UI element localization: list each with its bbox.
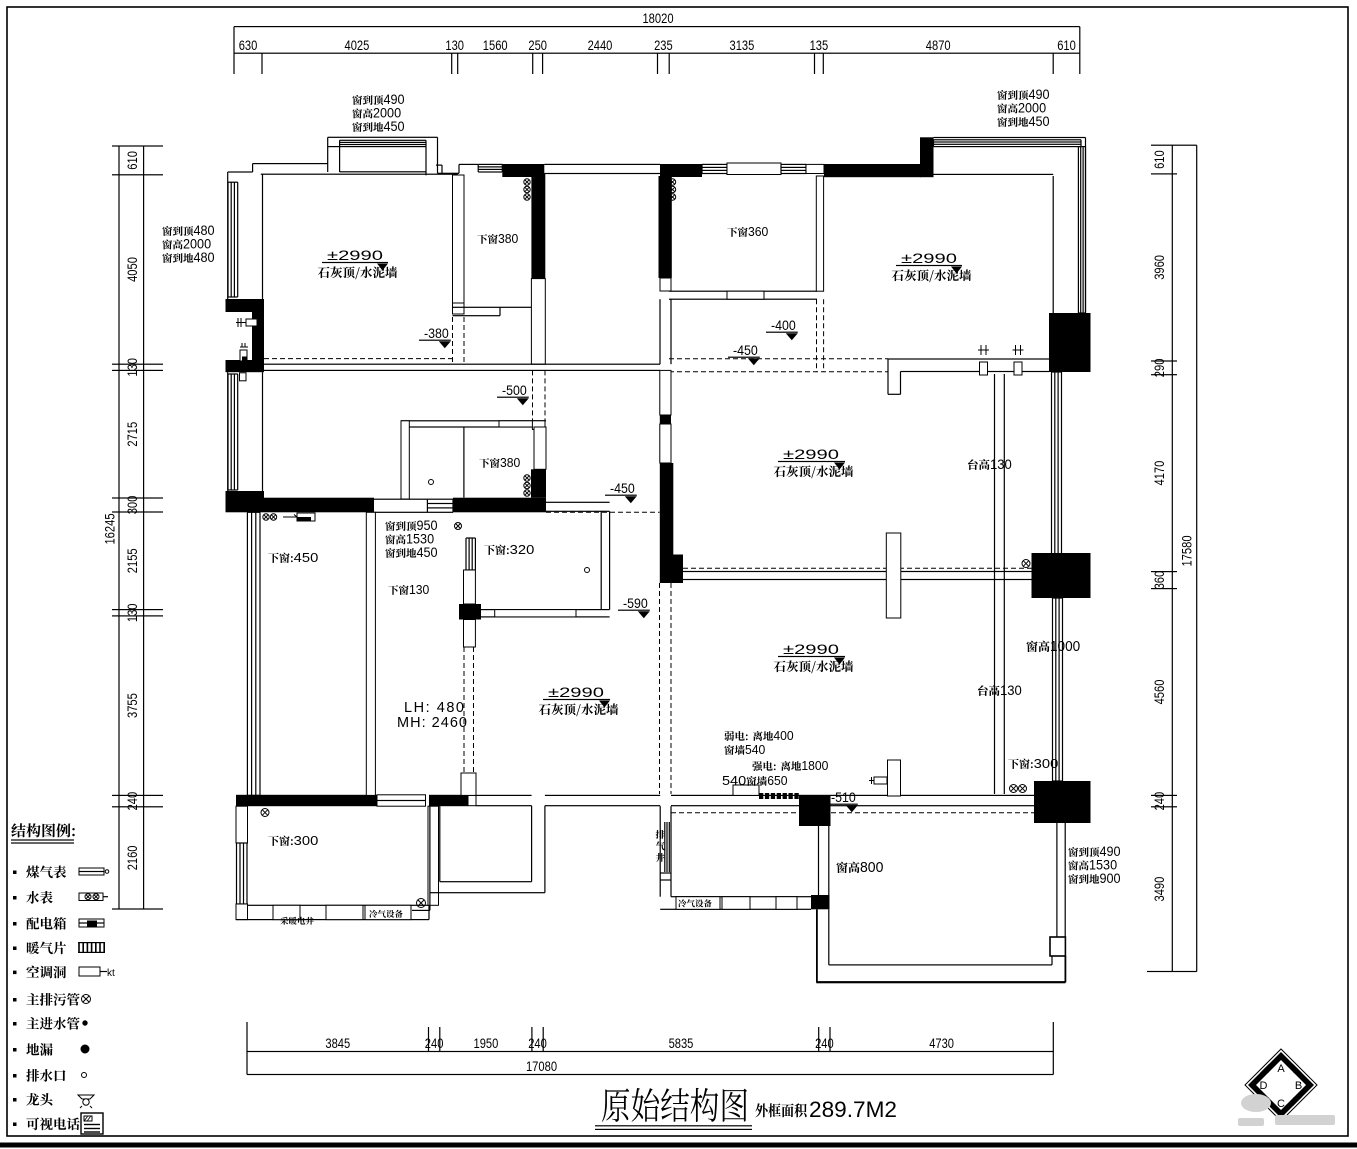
svg-text:250: 250 — [528, 38, 547, 53]
svg-text:-450: -450 — [610, 481, 635, 496]
svg-text:130: 130 — [1000, 682, 1022, 698]
svg-text:290: 290 — [1152, 359, 1167, 378]
svg-text:4560: 4560 — [1152, 680, 1167, 705]
svg-text:kt: kt — [107, 968, 115, 979]
svg-text:300: 300 — [125, 496, 140, 515]
svg-text:3845: 3845 — [325, 1036, 350, 1051]
svg-text:4170: 4170 — [1152, 461, 1167, 486]
svg-text:540: 540 — [745, 742, 765, 757]
svg-text:3960: 3960 — [1152, 255, 1167, 280]
svg-text:17080: 17080 — [526, 1059, 557, 1074]
svg-text:320: 320 — [510, 542, 535, 557]
svg-text:1560: 1560 — [483, 38, 508, 53]
svg-text:240: 240 — [815, 1036, 834, 1051]
svg-text:240: 240 — [1152, 792, 1167, 811]
svg-text:240: 240 — [125, 792, 140, 811]
svg-text:±2990: ±2990 — [783, 446, 839, 462]
svg-text:630: 630 — [239, 38, 258, 53]
svg-text:2715: 2715 — [125, 422, 140, 447]
svg-text:A: A — [1277, 1063, 1285, 1075]
svg-text:4025: 4025 — [345, 38, 370, 53]
svg-text:D: D — [1260, 1080, 1268, 1092]
svg-text:5835: 5835 — [669, 1036, 694, 1051]
svg-text:130: 130 — [125, 358, 140, 377]
svg-text:400: 400 — [773, 728, 793, 743]
svg-text:900: 900 — [1100, 871, 1121, 886]
svg-text:1000: 1000 — [1050, 639, 1080, 655]
svg-text:450: 450 — [384, 119, 405, 134]
svg-text:135: 135 — [810, 38, 829, 53]
svg-text:4870: 4870 — [926, 38, 951, 53]
svg-text:2155: 2155 — [125, 548, 140, 573]
svg-text:130: 130 — [445, 38, 464, 53]
svg-text:450: 450 — [294, 550, 319, 565]
svg-text:C: C — [1277, 1098, 1285, 1110]
svg-text:-510: -510 — [831, 790, 856, 805]
svg-text:300: 300 — [294, 833, 319, 848]
svg-text:360: 360 — [748, 224, 768, 239]
svg-text:2160: 2160 — [125, 846, 140, 871]
svg-text:4050: 4050 — [125, 257, 140, 282]
svg-text:1800: 1800 — [801, 758, 828, 773]
svg-text:-380: -380 — [424, 326, 449, 341]
svg-text:300: 300 — [1034, 756, 1059, 771]
svg-text:610: 610 — [125, 151, 140, 170]
svg-text:-590: -590 — [623, 596, 648, 611]
svg-text:4730: 4730 — [929, 1036, 954, 1051]
svg-text:2440: 2440 — [588, 38, 613, 53]
svg-text:240: 240 — [528, 1036, 547, 1051]
svg-text:±2990: ±2990 — [327, 247, 383, 263]
svg-text:289.7M2: 289.7M2 — [809, 1097, 897, 1122]
svg-text:MH: 2460: MH: 2460 — [397, 715, 467, 731]
svg-text:18020: 18020 — [642, 11, 673, 26]
svg-text:540: 540 — [722, 773, 746, 788]
svg-text:±2990: ±2990 — [783, 641, 839, 657]
svg-text:450: 450 — [417, 545, 438, 560]
svg-text:-500: -500 — [502, 383, 527, 398]
svg-text:360: 360 — [1152, 571, 1167, 590]
svg-text:LH: 480: LH: 480 — [404, 700, 464, 716]
svg-text:450: 450 — [1029, 114, 1050, 129]
svg-text:±2990: ±2990 — [548, 684, 604, 700]
svg-text:130: 130 — [125, 604, 140, 623]
svg-text:380: 380 — [500, 455, 520, 470]
svg-text:610: 610 — [1152, 150, 1167, 169]
svg-text:±2990: ±2990 — [901, 250, 957, 266]
svg-text:B: B — [1295, 1080, 1302, 1092]
svg-text:-450: -450 — [733, 343, 758, 358]
svg-text:235: 235 — [654, 38, 673, 53]
svg-text:480: 480 — [194, 250, 215, 265]
svg-text:1950: 1950 — [474, 1036, 499, 1051]
svg-text:16245: 16245 — [103, 513, 118, 544]
svg-text:3490: 3490 — [1152, 877, 1167, 902]
svg-text:3135: 3135 — [730, 38, 755, 53]
svg-text:800: 800 — [860, 859, 883, 876]
svg-text:-400: -400 — [771, 318, 796, 333]
svg-text:380: 380 — [498, 231, 518, 246]
svg-text:3755: 3755 — [125, 693, 140, 718]
svg-text:130: 130 — [409, 582, 429, 597]
svg-text:240: 240 — [425, 1036, 444, 1051]
svg-text:130: 130 — [990, 456, 1012, 472]
svg-text:17580: 17580 — [1180, 535, 1195, 566]
svg-text:650: 650 — [767, 773, 787, 788]
svg-text:610: 610 — [1057, 38, 1076, 53]
